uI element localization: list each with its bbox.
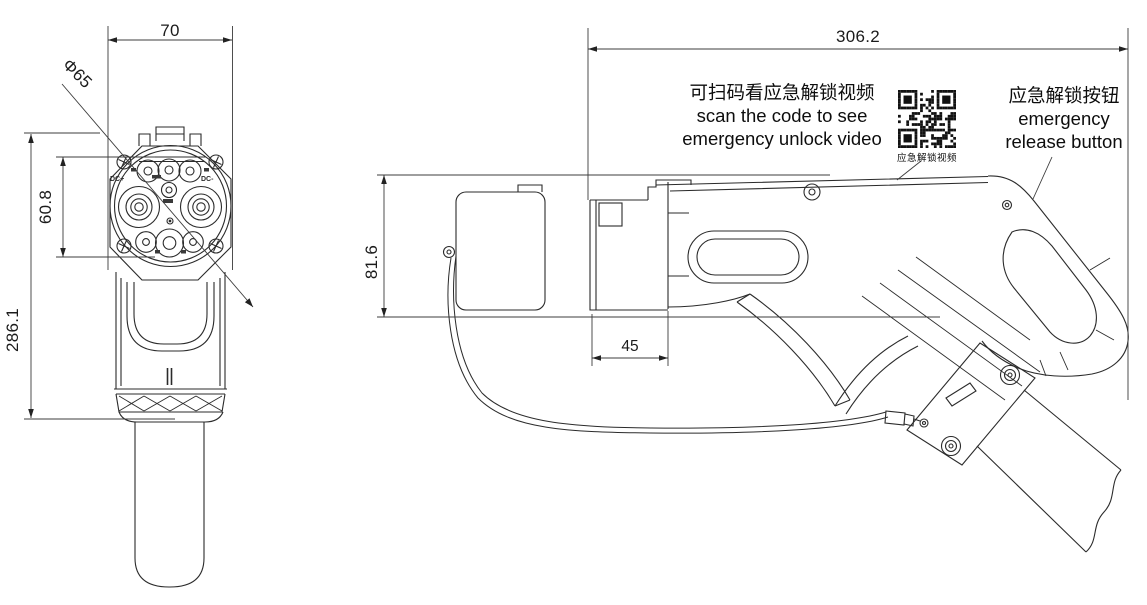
dim-phi65-leader [62, 84, 253, 307]
release-leader-line [1033, 157, 1052, 199]
gun-cable [977, 390, 1121, 552]
dim-70-lines [108, 26, 233, 270]
qr-note-en2: emergency unlock video [664, 127, 900, 150]
body-oval-recess [688, 231, 808, 283]
gun-nose [590, 182, 668, 310]
grip-ribs [862, 257, 1040, 400]
annotation-release-button: 应急解锁按钮 emergency release button [993, 84, 1135, 153]
gun-underside [668, 294, 918, 414]
drawing-canvas: DC+ DC- [0, 0, 1147, 605]
side-view-drawing [444, 176, 1129, 552]
qr-note-zh: 可扫码看应急解锁视频 [664, 81, 900, 104]
aux-pins-bottom [136, 229, 204, 257]
release-note-en1: emergency [993, 107, 1135, 130]
ground-pin-mark [167, 218, 173, 224]
front-body [114, 272, 227, 422]
rear-screw [1003, 201, 1012, 210]
dim-width-label: 70 [108, 21, 232, 41]
pin-label-dc-plus: DC+ [110, 176, 124, 183]
dimension-arrows [28, 37, 1128, 418]
dim-overall-length-label: 306.2 [788, 27, 928, 47]
front-cable [135, 422, 204, 587]
qr-code [898, 90, 956, 148]
dust-cap [444, 185, 546, 310]
dim-816-lines [377, 175, 940, 317]
cable-clamp [907, 343, 1035, 465]
dim-608-lines [56, 157, 155, 257]
release-note-en2: release button [993, 130, 1135, 153]
annotation-qr-note: 可扫码看应急解锁视频 scan the code to see emergenc… [664, 81, 900, 150]
dim-pin-span-label: 60.8 [36, 177, 56, 237]
front-view-drawing: DC+ DC- [110, 127, 231, 587]
signal-pins-top [137, 159, 201, 198]
dimension-lines [24, 26, 1128, 419]
pin-label-dc-minus: DC- [201, 176, 214, 183]
qr-note-en1: scan the code to see [664, 104, 900, 127]
qr-caption: 应急解锁视频 [893, 150, 961, 164]
technical-drawing-page: DC+ DC- [0, 0, 1147, 605]
pivot-screw [804, 184, 820, 200]
gun-top [648, 177, 988, 277]
dim-total-length-label: 286.1 [3, 300, 23, 360]
front-latch [139, 127, 201, 146]
dim-height-label: 81.6 [362, 232, 382, 292]
release-note-zh: 应急解锁按钮 [993, 84, 1135, 107]
dim-nose-length-label: 45 [600, 338, 660, 356]
